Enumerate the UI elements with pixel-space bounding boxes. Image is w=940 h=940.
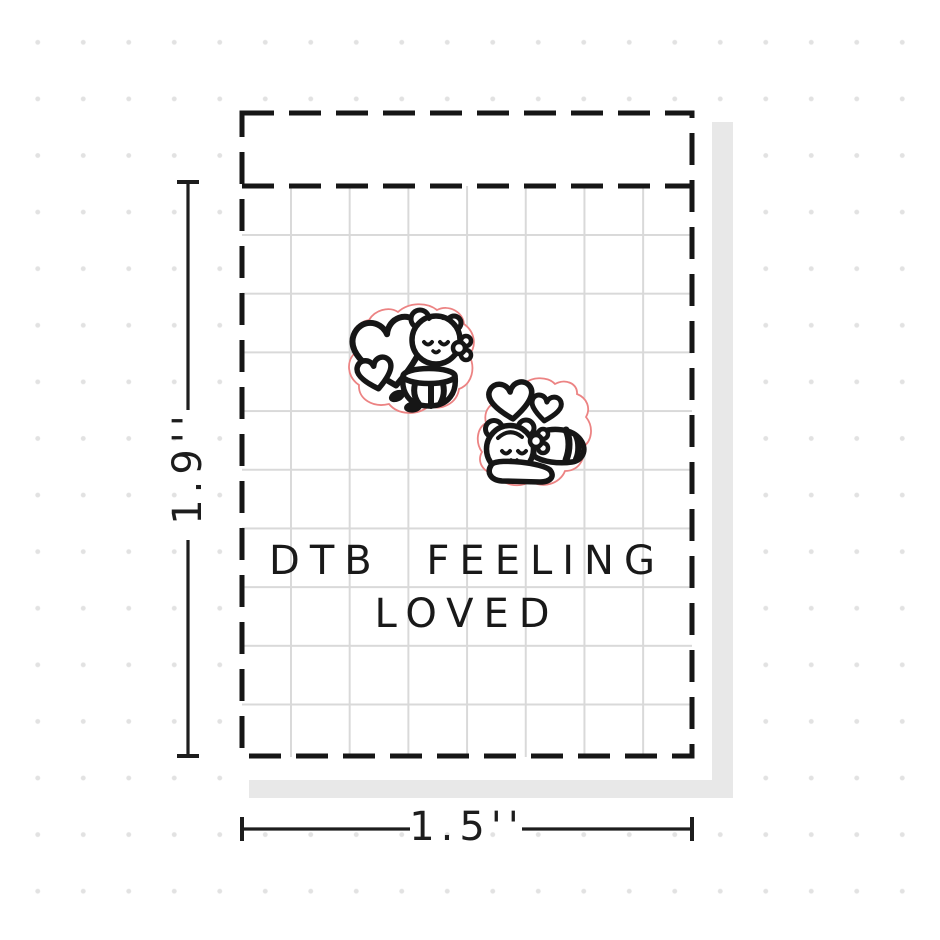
bear-lying-with-hearts-icon	[476, 374, 600, 492]
bear-hugging-heart-icon	[343, 296, 483, 420]
sheet-title-line2: LOVED	[242, 591, 692, 637]
height-dimension-label: 1.9''	[165, 409, 211, 525]
bear-hugging-heart-sticker	[343, 296, 483, 420]
sheet-cutline-rect	[242, 113, 692, 756]
sticker-sheet-product-mockup: { "title": { "line1": "DTB FEELING", "li…	[0, 0, 940, 940]
width-dimension-label: 1.5''	[409, 804, 525, 850]
sheet-title-line1: DTB FEELING	[242, 538, 692, 584]
diagram-overlay	[0, 0, 940, 940]
bear-lying-with-hearts-sticker	[476, 374, 600, 492]
